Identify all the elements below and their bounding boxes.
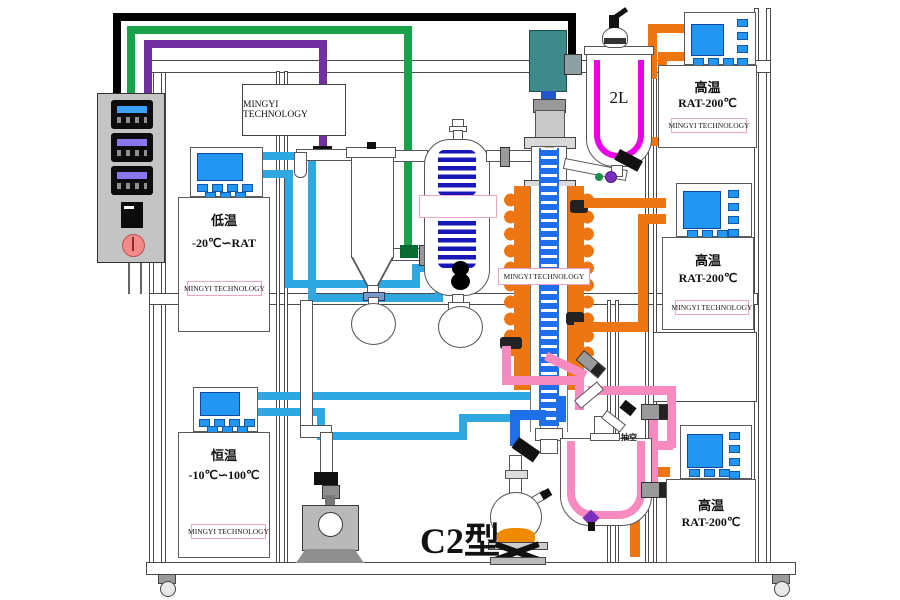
cyan-pipe xyxy=(317,432,467,440)
caster-wheel xyxy=(774,581,790,597)
controller-high-mid-screen[interactable] xyxy=(683,191,721,229)
outlet-valve-green[interactable] xyxy=(595,173,603,181)
outlet-valve-purple[interactable] xyxy=(605,171,617,183)
controller-badge: MINGYI TECHNOLOGY xyxy=(191,524,266,539)
green-coolant-pipe xyxy=(404,26,412,250)
pump-base xyxy=(296,549,364,563)
cyan-pipe xyxy=(250,392,536,400)
orange-pipe xyxy=(638,214,648,332)
neck-black-cap xyxy=(619,400,636,416)
controller-buttons[interactable] xyxy=(728,190,739,237)
trap-vessel-knob xyxy=(367,142,376,149)
controller-range: RAT-200℃ xyxy=(662,271,754,286)
cyan-pipe xyxy=(285,280,420,288)
panel-stand xyxy=(140,262,142,294)
purple-coolant-pipe xyxy=(144,40,152,95)
condenser-coil xyxy=(438,150,476,196)
power-cable xyxy=(113,13,121,95)
panel-module-display xyxy=(117,172,147,179)
cyan-pipe xyxy=(250,408,325,416)
vacuum-port-label: 抽空 xyxy=(616,432,642,443)
purple-coolant-pipe xyxy=(144,40,327,48)
pump-valve[interactable] xyxy=(314,472,338,485)
controller-range: -10℃∽100℃ xyxy=(178,468,270,483)
controller-name: 恒温 xyxy=(178,445,270,464)
frame-right-post xyxy=(766,8,771,563)
pink-pipe xyxy=(502,376,584,385)
controller-badge: MINGYI TECHNOLOGY xyxy=(671,118,747,133)
controller-name: 高温 xyxy=(662,250,754,269)
column-lower-neck xyxy=(540,439,558,454)
green-pipe-valve[interactable] xyxy=(400,245,418,258)
cyan-pipe xyxy=(459,414,511,422)
diagram-canvas: MINGYI TECHNOLOGY xyxy=(0,0,900,600)
vessel-pink-jacket xyxy=(567,441,645,519)
vessel-drain-valve[interactable] xyxy=(588,522,595,531)
model-label: C2型 xyxy=(394,512,526,564)
condenser-label-band xyxy=(419,195,497,218)
controller-buttons[interactable] xyxy=(737,19,748,66)
controller-buttons[interactable] xyxy=(197,184,253,192)
panel-module[interactable] xyxy=(111,133,153,162)
panel-module-pins xyxy=(117,150,147,156)
receiving-flask xyxy=(351,303,396,345)
panel-power-knob-line xyxy=(132,237,134,251)
controller-badge: MINGYI TECHNOLOGY xyxy=(187,281,262,296)
frame-inner-post xyxy=(284,71,288,563)
column-badge: MINGYI TECHNOLOGY xyxy=(498,268,590,285)
panel-module[interactable] xyxy=(111,166,153,195)
controller-name: 高温 xyxy=(658,77,757,96)
brand-box-label: MINGYI TECHNOLOGY xyxy=(243,100,345,120)
column-heating-jacket xyxy=(514,186,530,390)
controller-buttons[interactable] xyxy=(689,469,730,477)
vacuum-line xyxy=(320,432,333,476)
controller-low-temp-screen[interactable] xyxy=(197,153,243,181)
green-coolant-pipe xyxy=(127,26,412,34)
panel-module-pins xyxy=(117,183,147,189)
panel-module-display xyxy=(117,106,147,113)
receiving-flask xyxy=(438,306,483,348)
panel-module[interactable] xyxy=(111,100,153,129)
brand-box: MINGYI TECHNOLOGY xyxy=(242,84,346,136)
tube-connector-ring xyxy=(500,147,510,167)
glass-tube xyxy=(486,150,534,162)
controller-range: RAT-200℃ xyxy=(666,515,756,530)
panel-stand xyxy=(128,262,130,294)
pink-pipe xyxy=(667,386,676,448)
orange-pipe xyxy=(574,322,644,332)
blue-discharge-pipe xyxy=(556,396,566,422)
vessel-side-elbow xyxy=(641,482,668,498)
controller-badge: MINGYI TECHNOLOGY xyxy=(675,300,749,315)
cyan-pipe xyxy=(285,170,293,286)
column-head-cylinder xyxy=(535,110,565,140)
orange-pipe xyxy=(584,198,666,208)
power-cable xyxy=(568,13,576,59)
panel-module-display xyxy=(117,139,147,146)
vacuum-line xyxy=(300,300,313,432)
controller-range: RAT-200℃ xyxy=(658,96,757,111)
controller-const-temp-screen[interactable] xyxy=(200,392,240,416)
controller-name: 低温 xyxy=(178,210,270,229)
orange-pipe xyxy=(638,214,666,224)
frame-inner-post xyxy=(276,71,280,563)
controller-high-bottom-screen[interactable] xyxy=(687,434,723,468)
caster-wheel xyxy=(160,581,176,597)
feed-vessel-handle xyxy=(613,7,628,20)
vessel-side-elbow xyxy=(641,404,668,420)
controller-high-top-screen[interactable] xyxy=(691,24,724,56)
glass-tube xyxy=(392,150,428,162)
glass-tube xyxy=(294,152,307,178)
panel-module-pins xyxy=(117,117,147,123)
trap-vessel-body xyxy=(351,157,394,258)
panel-switch-mark xyxy=(124,206,134,209)
flask-neck-collar xyxy=(505,470,528,479)
motor-cable-box xyxy=(564,54,582,75)
condenser-coil xyxy=(438,212,476,268)
stirrer-motor xyxy=(529,30,567,92)
pump-window xyxy=(318,512,343,537)
power-cable xyxy=(113,13,576,21)
feed-vessel-label: 2L xyxy=(598,88,640,108)
condenser-drain-valve[interactable] xyxy=(451,273,470,290)
controller-range: -20℃∽RAT xyxy=(178,236,270,251)
feed-vessel-jacket xyxy=(594,60,644,159)
controller-buttons[interactable] xyxy=(729,432,740,479)
feed-vessel-clamp xyxy=(604,38,626,44)
green-coolant-pipe xyxy=(127,26,135,95)
controller-name: 高温 xyxy=(666,495,756,514)
